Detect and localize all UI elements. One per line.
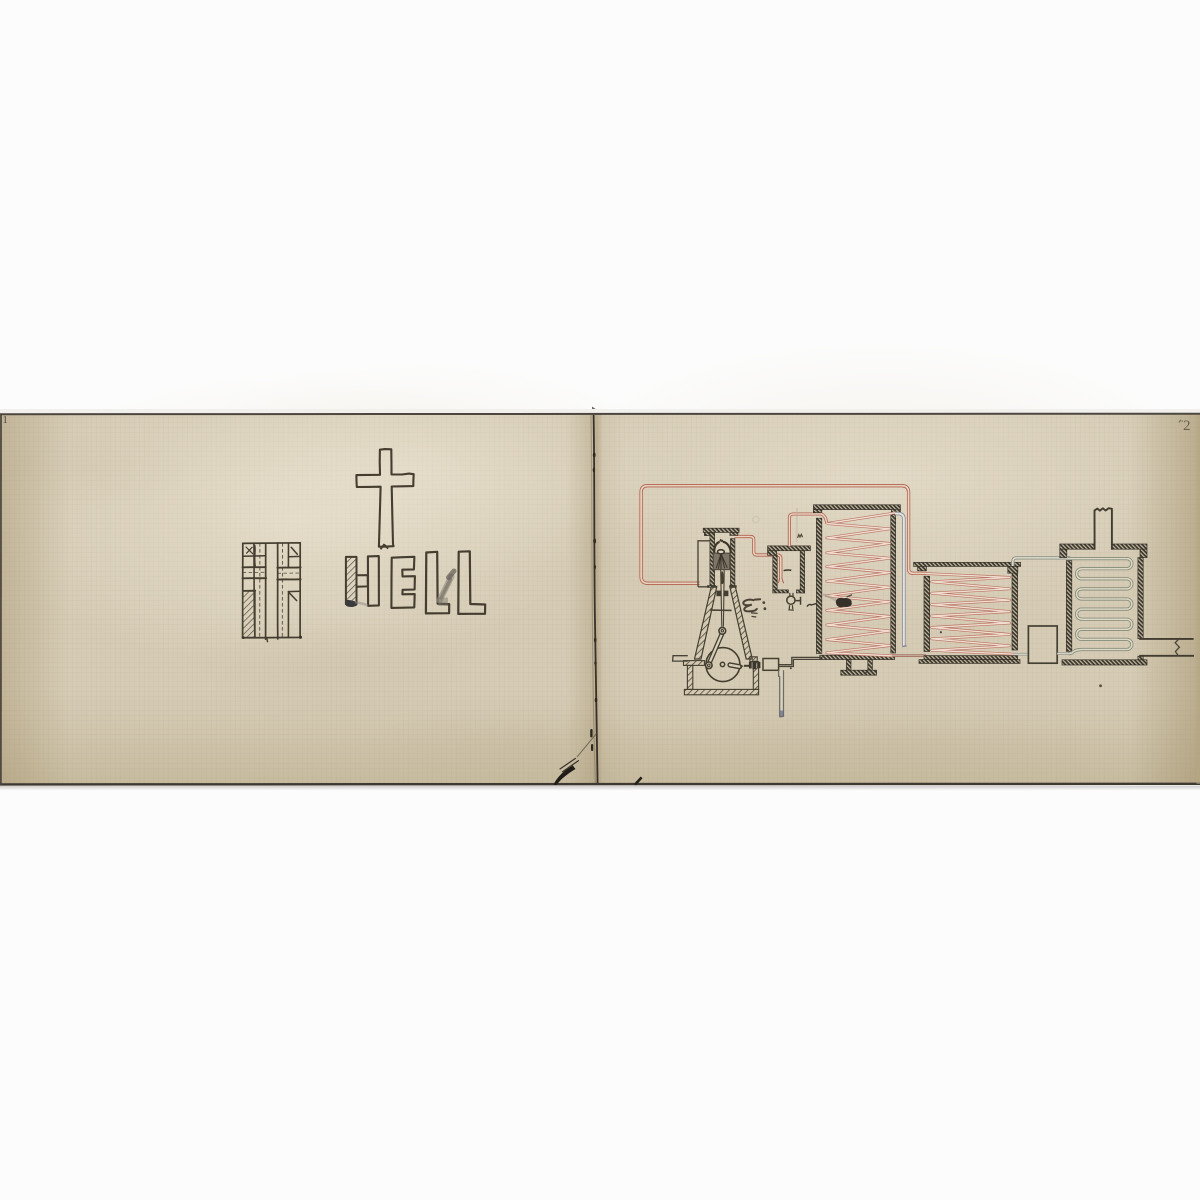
svg-text:2: 2 (1183, 418, 1191, 434)
svg-text:1: 1 (3, 415, 8, 426)
